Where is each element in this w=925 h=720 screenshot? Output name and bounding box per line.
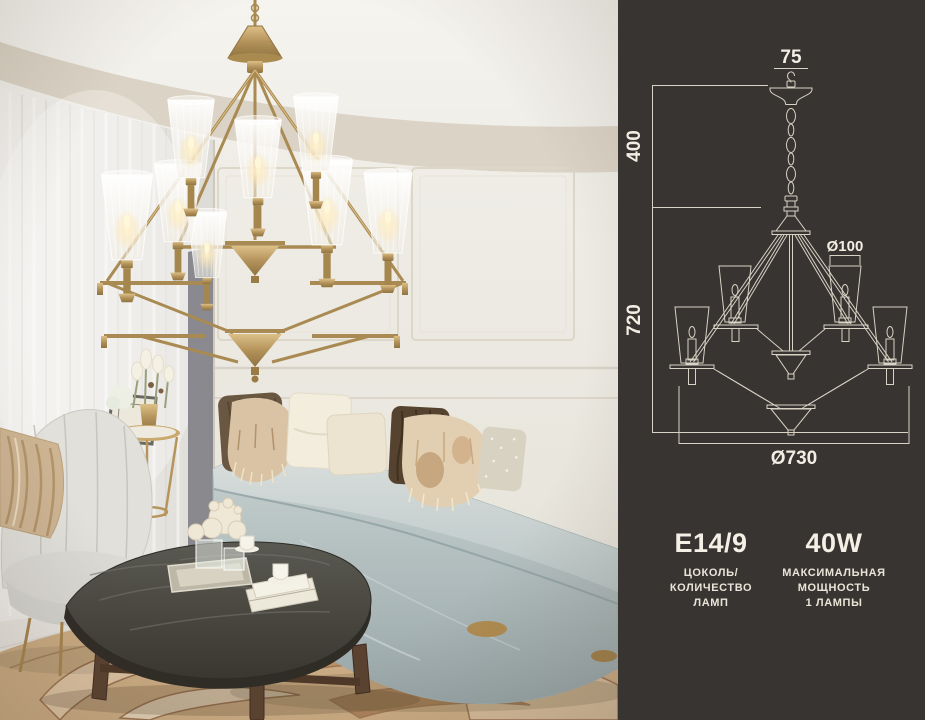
shade-drawing-upper-left bbox=[719, 266, 751, 323]
dim-75-label: 75 bbox=[780, 47, 802, 68]
spec-panel: 75 400 720 Ø100 Ø730 bbox=[618, 0, 925, 720]
dim-720-label: 720 bbox=[624, 304, 645, 336]
spec-power-label: МАКСИМАЛЬНАЯ МОЩНОСТЬ 1 ЛАМПЫ bbox=[754, 566, 914, 611]
shade-drawing-lower-right bbox=[873, 307, 907, 364]
dim-100-label: Ø100 bbox=[827, 238, 864, 255]
canopy-drawing bbox=[770, 81, 812, 105]
spec-power-label-line: МАКСИМАЛЬНАЯ bbox=[754, 566, 914, 581]
photo-vignette bbox=[0, 0, 618, 720]
spec-power-label-line: 1 ЛАМПЫ bbox=[754, 596, 914, 611]
spec-power-label-line: МОЩНОСТЬ bbox=[754, 581, 914, 596]
mid-cone-drawing bbox=[772, 351, 810, 379]
chandelier-outline bbox=[670, 72, 912, 435]
spec-blocks: E14/9 ЦОКОЛЬ/ КОЛИЧЕСТВО ЛАМП 40W МАКСИМ… bbox=[618, 528, 925, 638]
dim-730-label: Ø730 bbox=[771, 448, 817, 469]
dim-400-label: 400 bbox=[624, 130, 645, 162]
spec-power: 40W МАКСИМАЛЬНАЯ МОЩНОСТЬ 1 ЛАМПЫ bbox=[754, 528, 914, 611]
chain-drawing bbox=[784, 109, 798, 217]
bottom-cone-drawing bbox=[767, 405, 815, 435]
spec-power-value: 40W bbox=[754, 528, 914, 559]
lifestyle-photo bbox=[0, 0, 618, 720]
dimension-lines bbox=[652, 69, 909, 444]
shade-drawing-lower-left bbox=[675, 307, 709, 364]
product-image: 75 400 720 Ø100 Ø730 bbox=[0, 0, 925, 720]
